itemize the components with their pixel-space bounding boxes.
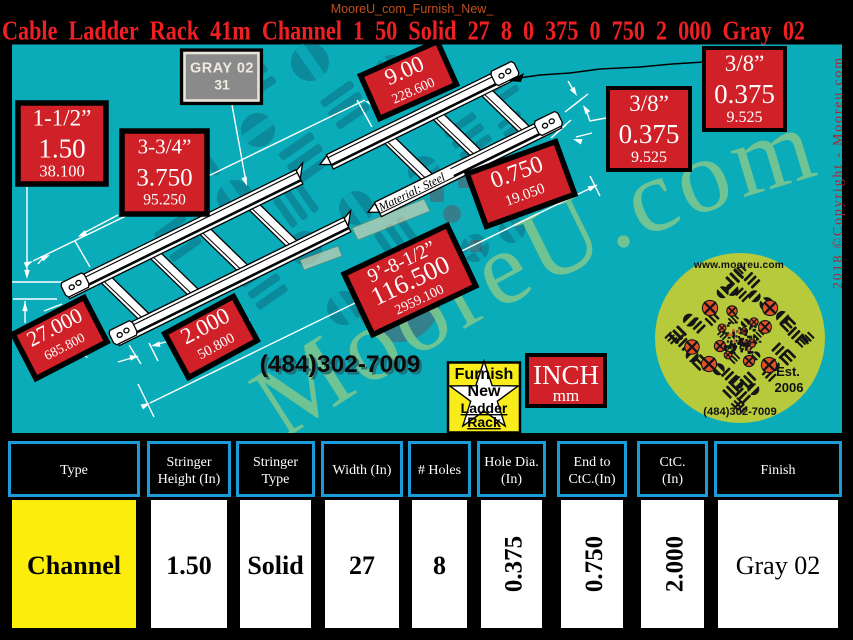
svg-text:(In): (In)	[662, 472, 683, 487]
svg-text:New: New	[468, 383, 501, 400]
svg-text:CtC.(In): CtC.(In)	[568, 472, 615, 487]
svg-text:Est.: Est.	[776, 364, 800, 379]
svg-text:Hole Dia.: Hole Dia.	[484, 455, 538, 470]
svg-text:8: 8	[433, 551, 446, 580]
svg-text:Stringer: Stringer	[253, 455, 298, 470]
svg-text:GRAY 02: GRAY 02	[190, 61, 254, 77]
svg-text:95.250: 95.250	[143, 192, 186, 209]
svg-text:CtC.: CtC.	[659, 455, 685, 470]
svg-text:3-3/4”: 3-3/4”	[138, 135, 192, 159]
svg-text:Type: Type	[60, 463, 88, 478]
svg-text:38.100: 38.100	[39, 162, 84, 181]
svg-text:mm: mm	[553, 386, 579, 405]
svg-text:0.750: 0.750	[581, 536, 608, 592]
svg-text:1.50: 1.50	[166, 551, 212, 580]
svg-text:1.50: 1.50	[38, 134, 85, 164]
svg-text:2006: 2006	[775, 380, 804, 395]
svg-text:Solid: Solid	[247, 551, 304, 580]
svg-text:(484)302-7009: (484)302-7009	[260, 351, 421, 378]
svg-text:Width (In): Width (In)	[333, 463, 392, 478]
svg-text:Channel: Channel	[27, 551, 121, 580]
svg-text:0.375: 0.375	[501, 536, 528, 592]
svg-text:Finish: Finish	[760, 463, 795, 478]
svg-text:Gray 02: Gray 02	[736, 551, 820, 580]
svg-text:0.375: 0.375	[619, 119, 680, 149]
svg-text:31: 31	[214, 77, 230, 93]
svg-text:End to: End to	[574, 455, 611, 470]
svg-text:Rack: Rack	[467, 414, 501, 430]
svg-text:Height (In): Height (In)	[158, 472, 221, 487]
svg-text:Cable Ladder Rack 41m Chan: Cable Ladder Rack 41m Channel 1 50 Solid…	[2, 15, 805, 46]
svg-text:2.000: 2.000	[662, 536, 689, 592]
svg-text:3/8”: 3/8”	[629, 91, 669, 116]
svg-text:27: 27	[349, 551, 375, 580]
svg-text:3/8”: 3/8”	[725, 51, 765, 76]
svg-text:9.525: 9.525	[727, 109, 763, 126]
svg-text:Stringer: Stringer	[166, 455, 211, 470]
svg-text:0.375: 0.375	[714, 79, 775, 109]
svg-text:2018 ©Copyright - Mooreu.com: 2018 ©Copyright - Mooreu.com	[831, 56, 846, 289]
svg-text:3.750: 3.750	[136, 165, 192, 192]
svg-text:1-1/2”: 1-1/2”	[33, 106, 92, 131]
svg-text:# Holes: # Holes	[418, 463, 461, 478]
svg-text:Type: Type	[262, 472, 290, 487]
svg-text:Furnish: Furnish	[455, 366, 514, 383]
svg-text:(In): (In)	[501, 472, 522, 487]
svg-text:9.525: 9.525	[631, 149, 667, 166]
